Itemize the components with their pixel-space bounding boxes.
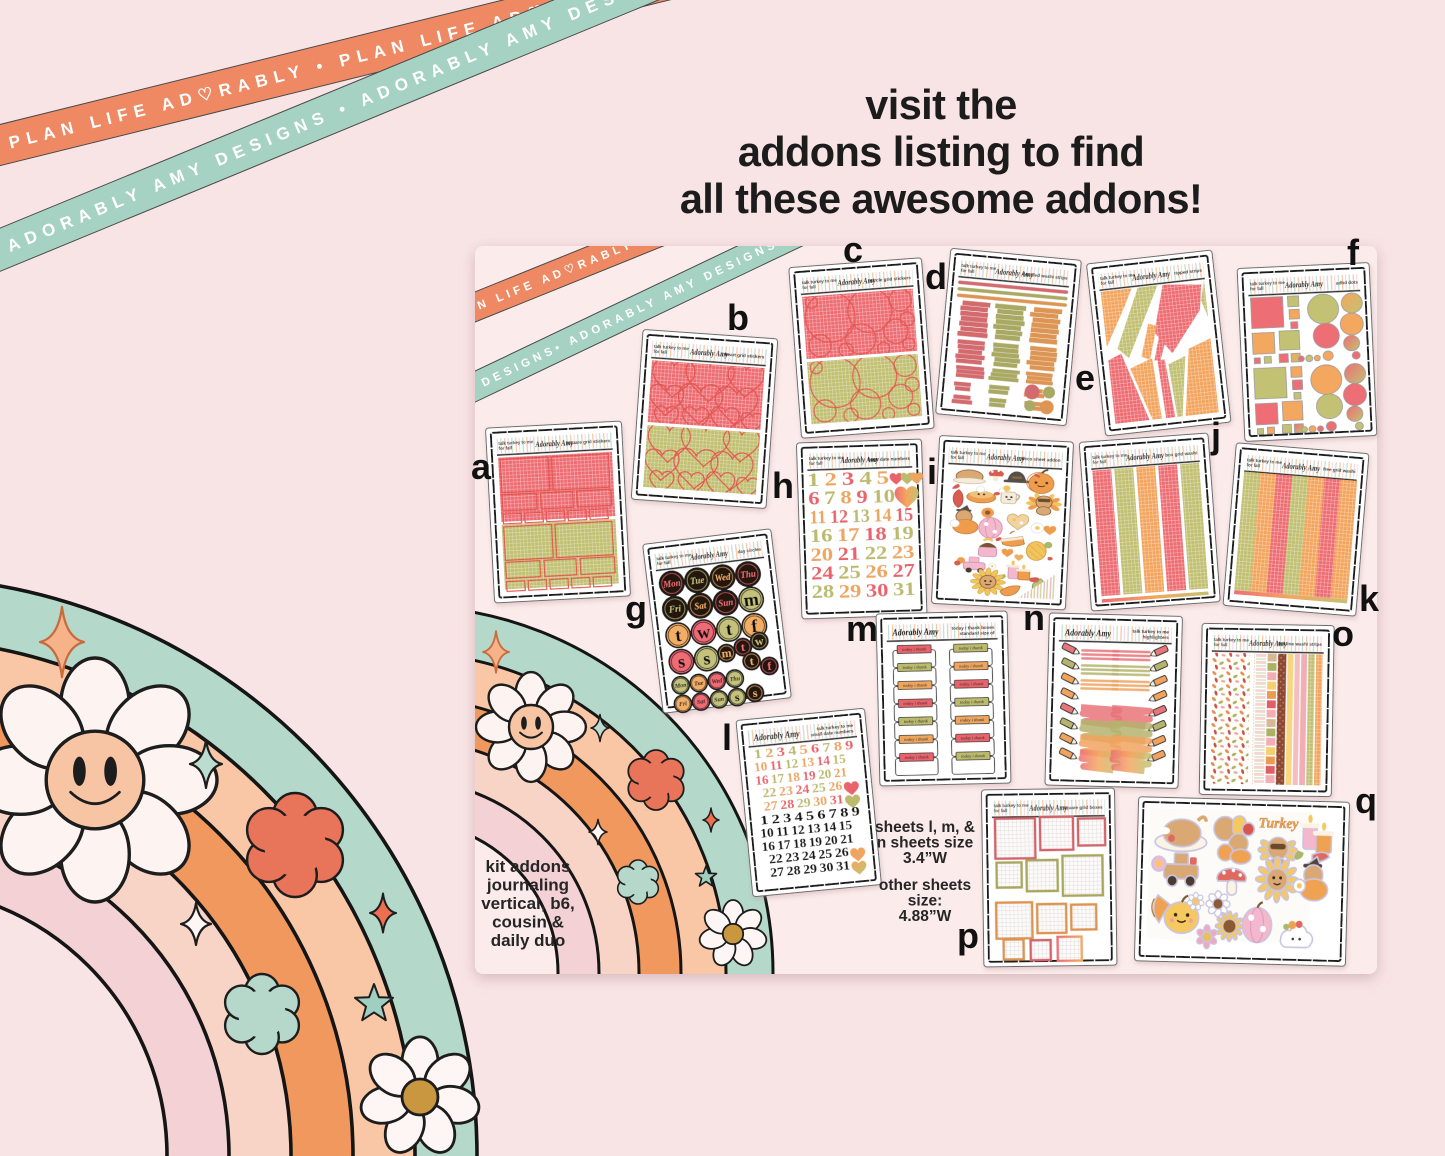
- svg-text:for fall: for fall: [809, 461, 823, 466]
- svg-text:Turkey: Turkey: [1258, 815, 1299, 833]
- svg-text:journaling: journaling: [486, 876, 569, 895]
- svg-text:l: l: [722, 717, 732, 758]
- svg-text:today i thank: today i thank: [902, 664, 927, 670]
- svg-text:cousin &: cousin &: [492, 913, 564, 932]
- svg-text:for fall: for fall: [498, 445, 512, 451]
- svg-text:visit the: visit the: [865, 81, 1016, 128]
- svg-text:j: j: [1210, 415, 1221, 456]
- svg-text:w: w: [696, 622, 711, 643]
- svg-text:Adorably Amy: Adorably Amy: [1284, 278, 1323, 290]
- svg-text:d: d: [925, 256, 947, 297]
- svg-text:Sat: Sat: [694, 600, 708, 611]
- svg-text:today i thank: today i thank: [904, 736, 929, 742]
- svg-text:fall line washi strips: fall line washi strips: [1278, 641, 1322, 647]
- svg-text:today i thank: today i thank: [903, 700, 928, 706]
- svg-text:Fri: Fri: [679, 701, 688, 708]
- svg-text:Tue: Tue: [694, 681, 704, 688]
- svg-text:3.4”W: 3.4”W: [903, 850, 947, 867]
- svg-text:4.88”W: 4.88”W: [899, 908, 952, 925]
- svg-text:i: i: [927, 451, 937, 492]
- svg-text:c: c: [843, 229, 863, 270]
- svg-text:Sat: Sat: [697, 699, 706, 706]
- svg-text:g: g: [625, 588, 647, 629]
- svg-text:sheets l, m, &: sheets l, m, &: [875, 819, 975, 836]
- svg-text:for fall: for fall: [1093, 459, 1107, 465]
- svg-text:vertical, b6,: vertical, b6,: [481, 894, 575, 913]
- svg-text:for fall: for fall: [1250, 286, 1264, 292]
- svg-text:k: k: [1359, 578, 1380, 619]
- svg-text:today i thank: today i thank: [960, 717, 985, 723]
- svg-text:f: f: [1347, 232, 1360, 273]
- svg-text:today i thank: today i thank: [959, 645, 984, 651]
- svg-text:for fall: for fall: [653, 349, 667, 355]
- svg-text:Adorably Amy: Adorably Amy: [892, 628, 940, 639]
- svg-text:size:: size:: [908, 893, 942, 910]
- svg-text:h: h: [772, 465, 794, 506]
- svg-text:today i thank: today i thank: [902, 646, 927, 652]
- svg-text:today i thank: today i thank: [961, 753, 986, 759]
- svg-text:Adorably Amy: Adorably Amy: [1028, 802, 1067, 813]
- svg-text:today i thank: today i thank: [959, 663, 984, 669]
- svg-text:today i thank: today i thank: [904, 718, 929, 724]
- svg-text:a: a: [471, 446, 492, 487]
- svg-text:o: o: [1332, 613, 1354, 654]
- svg-text:p: p: [957, 915, 979, 956]
- svg-text:for fall: for fall: [994, 808, 1007, 813]
- svg-text:adhd dots: adhd dots: [1336, 280, 1359, 286]
- svg-text:today i thank: today i thank: [959, 681, 984, 687]
- svg-text:today i thank: today i thank: [905, 754, 930, 760]
- svg-text:for fall: for fall: [951, 455, 965, 461]
- svg-text:Thu: Thu: [740, 568, 757, 580]
- svg-text:m: m: [721, 646, 733, 661]
- svg-text:square grid boxes: square grid boxes: [1063, 805, 1103, 811]
- svg-text:today i thank: today i thank: [960, 699, 985, 705]
- svg-text:Adorably Amy: Adorably Amy: [1064, 628, 1112, 639]
- svg-text:q: q: [1355, 780, 1377, 821]
- svg-text:all these awesome addons!: all these awesome addons!: [680, 175, 1202, 222]
- svg-text:n: n: [1023, 597, 1045, 638]
- svg-text:addons listing to find: addons listing to find: [738, 128, 1144, 175]
- svg-text:other sheets: other sheets: [879, 877, 971, 894]
- svg-text:28 29 30 31: 28 29 30 31: [811, 579, 916, 603]
- svg-text:daily duo: daily duo: [491, 931, 566, 950]
- svg-text:n sheets size: n sheets size: [877, 835, 974, 852]
- svg-text:Sun: Sun: [718, 597, 734, 609]
- svg-text:Sun: Sun: [714, 697, 725, 704]
- svg-text:today i thank: today i thank: [961, 735, 986, 741]
- svg-text:b: b: [727, 297, 749, 338]
- svg-text:Tue: Tue: [690, 575, 705, 587]
- svg-text:Fri: Fri: [667, 603, 682, 615]
- svg-text:m: m: [742, 589, 759, 611]
- svg-text:Adorably Amy: Adorably Amy: [986, 451, 1025, 463]
- svg-text:Wed: Wed: [714, 571, 731, 583]
- svg-text:highlighters: highlighters: [1143, 634, 1170, 640]
- svg-text:m: m: [846, 608, 878, 649]
- svg-text:today i thank: today i thank: [903, 682, 928, 688]
- svg-text:e: e: [1075, 357, 1095, 398]
- svg-text:for fall: for fall: [1214, 642, 1228, 647]
- svg-text:standard size of: standard size of: [959, 630, 995, 636]
- svg-text:for fall: for fall: [802, 284, 816, 290]
- svg-text:kit addons: kit addons: [485, 857, 570, 876]
